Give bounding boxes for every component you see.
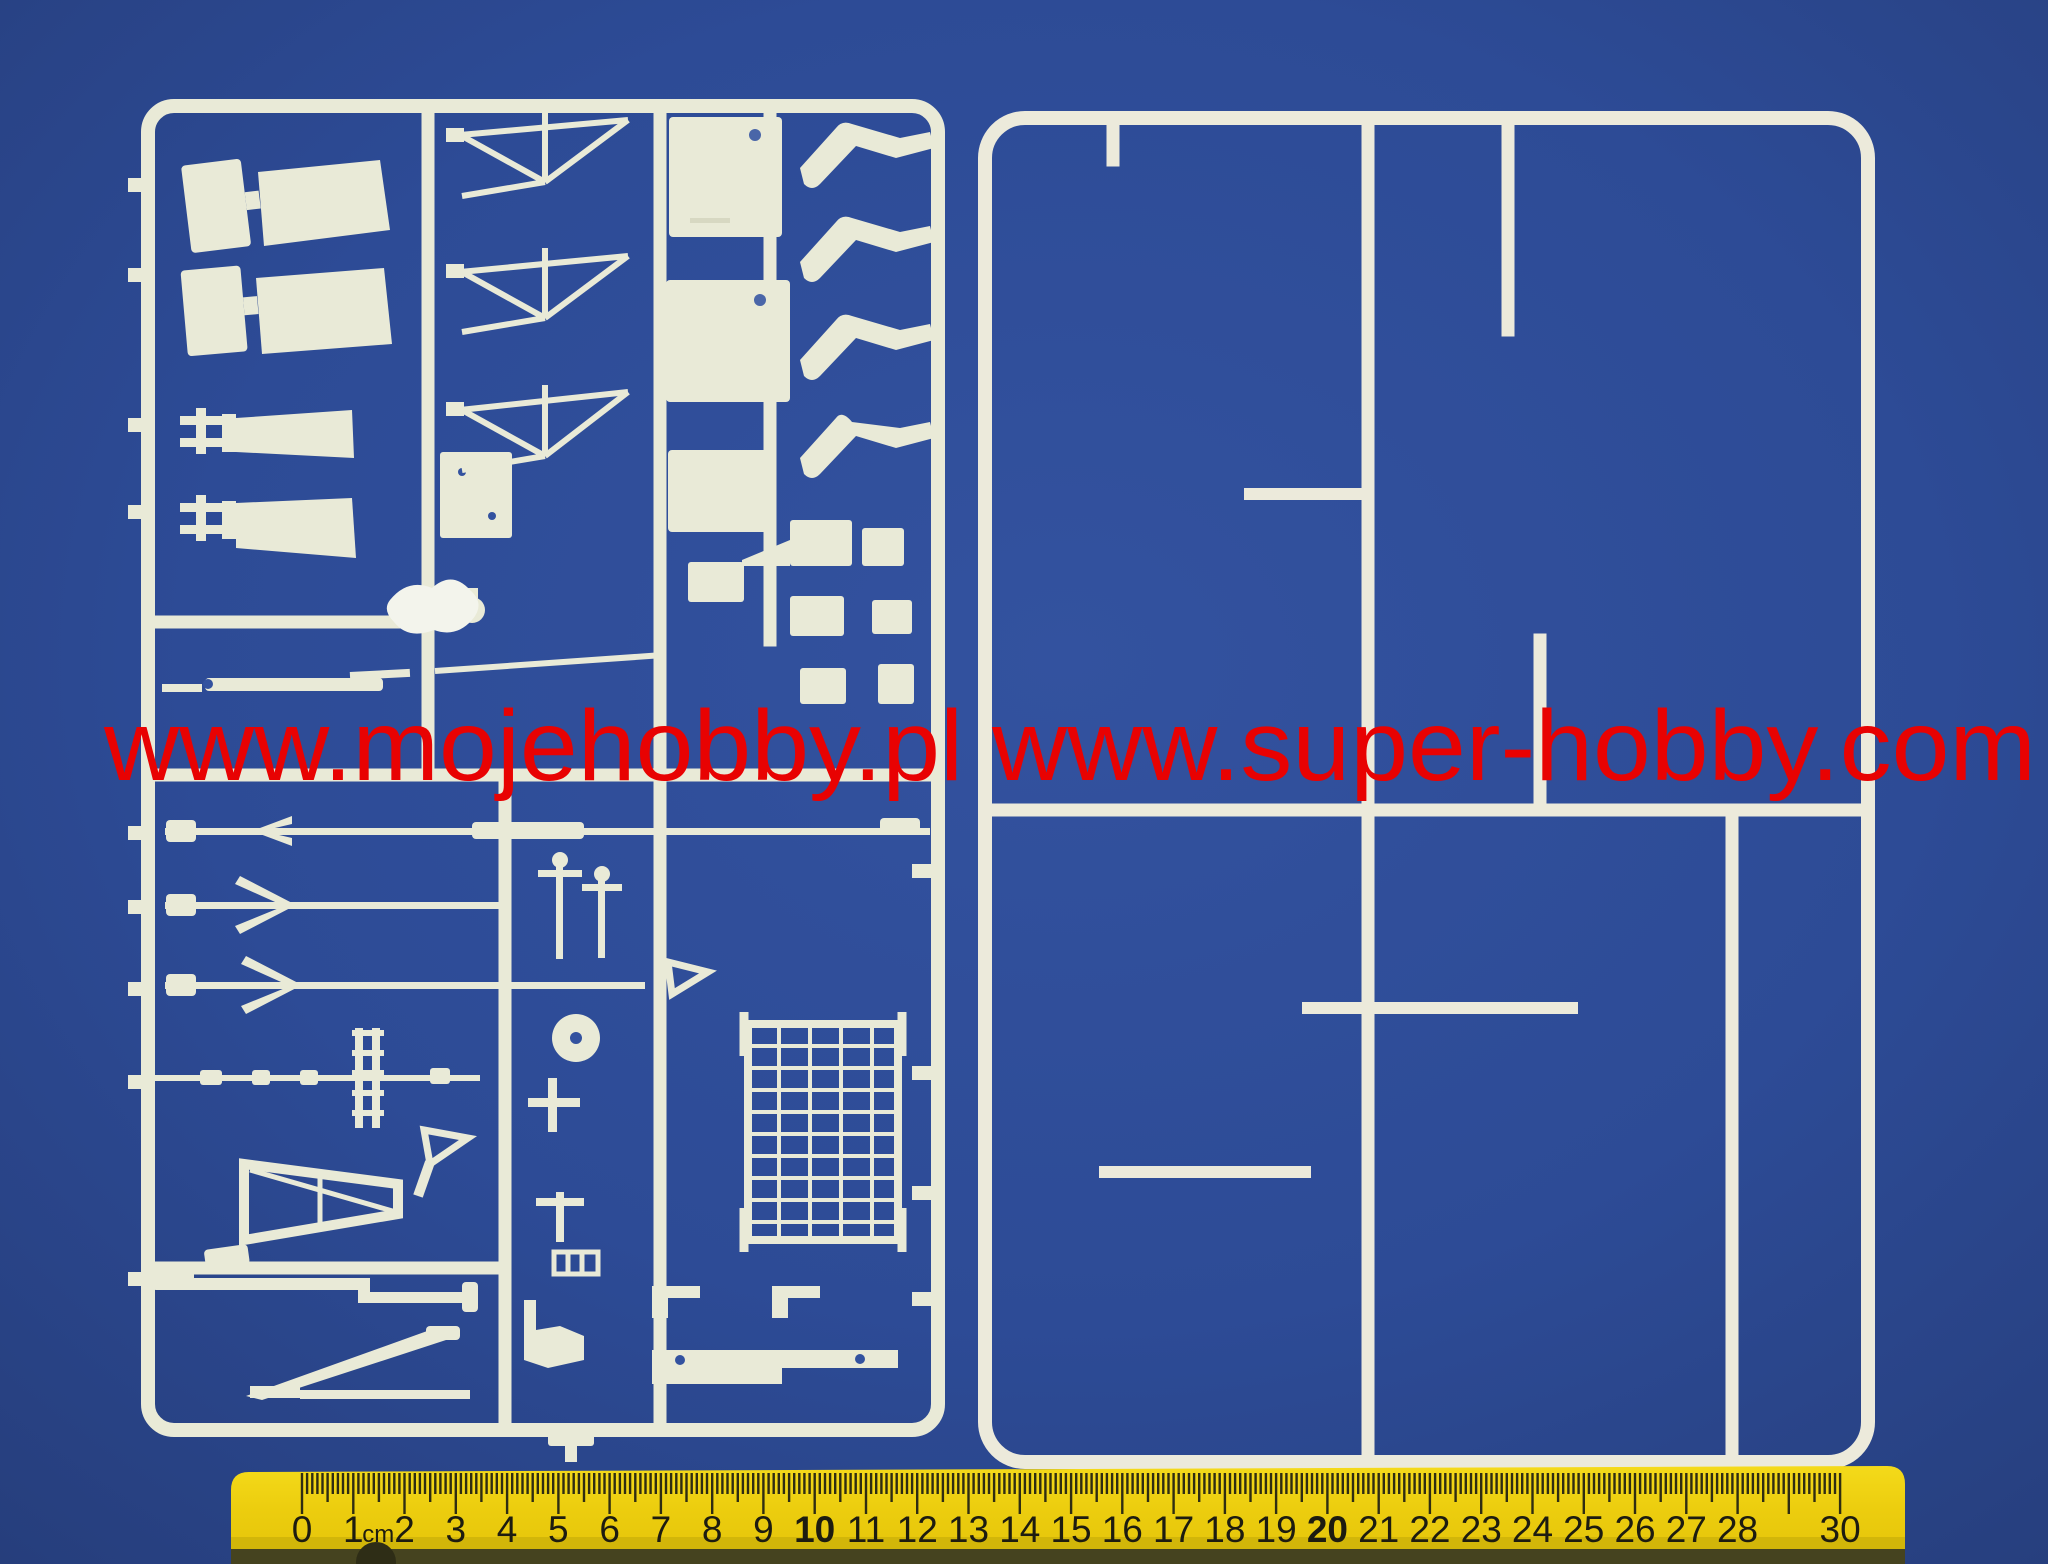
svg-text:7: 7 [651, 1509, 672, 1550]
svg-text:cm: cm [362, 1521, 394, 1548]
svg-text:19: 19 [1256, 1509, 1297, 1550]
svg-text:14: 14 [999, 1509, 1040, 1550]
svg-text:6: 6 [599, 1509, 620, 1550]
svg-text:20: 20 [1307, 1509, 1348, 1550]
svg-text:24: 24 [1512, 1509, 1553, 1550]
svg-text:4: 4 [497, 1509, 518, 1550]
svg-text:18: 18 [1204, 1509, 1245, 1550]
svg-text:1: 1 [343, 1509, 364, 1550]
svg-text:5: 5 [548, 1509, 569, 1550]
svg-text:21: 21 [1358, 1509, 1399, 1550]
svg-text:www.mojehobby.pl www.super-hob: www.mojehobby.pl www.super-hobby.com [103, 690, 2036, 802]
svg-text:17: 17 [1153, 1509, 1194, 1550]
svg-text:9: 9 [753, 1509, 774, 1550]
svg-text:25: 25 [1563, 1509, 1604, 1550]
svg-text:12: 12 [897, 1509, 938, 1550]
svg-text:11: 11 [847, 1509, 885, 1550]
svg-text:8: 8 [702, 1509, 723, 1550]
svg-text:26: 26 [1614, 1509, 1655, 1550]
svg-text:28: 28 [1717, 1509, 1758, 1550]
svg-text:3: 3 [446, 1509, 467, 1550]
svg-text:2: 2 [394, 1509, 415, 1550]
svg-text:0: 0 [292, 1509, 313, 1550]
svg-text:16: 16 [1102, 1509, 1143, 1550]
svg-text:15: 15 [1050, 1509, 1091, 1550]
svg-text:27: 27 [1666, 1509, 1707, 1550]
svg-text:13: 13 [948, 1509, 989, 1550]
svg-text:30: 30 [1820, 1509, 1861, 1550]
svg-text:10: 10 [794, 1509, 835, 1550]
svg-text:23: 23 [1461, 1509, 1502, 1550]
svg-text:22: 22 [1409, 1509, 1450, 1550]
